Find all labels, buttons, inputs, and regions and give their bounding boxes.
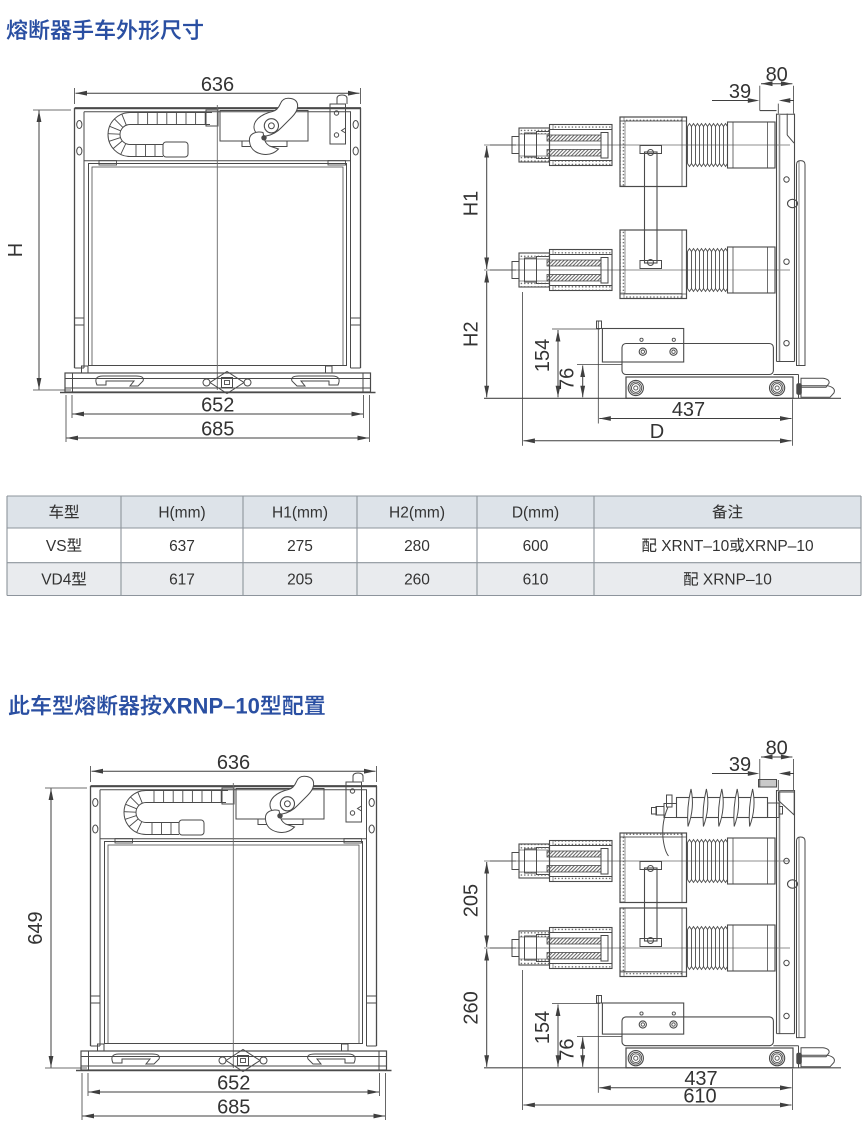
- svg-text:76: 76: [557, 1038, 579, 1060]
- svg-text:280: 280: [404, 538, 430, 555]
- svg-text:XRNT–10: XRNT–10: [661, 538, 729, 555]
- svg-text:H2(mm): H2(mm): [389, 505, 445, 522]
- svg-text:H2: H2: [461, 321, 483, 347]
- svg-text:205: 205: [287, 572, 313, 589]
- svg-text:652: 652: [217, 1072, 250, 1094]
- svg-text:H1: H1: [461, 191, 483, 217]
- svg-text:XRNP–10: XRNP–10: [162, 694, 260, 719]
- svg-text:H1(mm): H1(mm): [272, 505, 328, 522]
- svg-text:636: 636: [217, 752, 250, 774]
- svg-text:39: 39: [729, 754, 751, 776]
- svg-text:685: 685: [201, 418, 234, 440]
- svg-text:76: 76: [557, 368, 579, 390]
- svg-text:275: 275: [287, 538, 313, 555]
- svg-text:205: 205: [461, 884, 483, 917]
- svg-text:260: 260: [404, 572, 430, 589]
- svg-text:XRNP–10: XRNP–10: [703, 572, 772, 589]
- svg-text:154: 154: [532, 339, 554, 372]
- svg-text:VS: VS: [46, 538, 67, 555]
- svg-text:637: 637: [169, 538, 195, 555]
- svg-text:610: 610: [683, 1085, 716, 1107]
- svg-text:D: D: [650, 421, 664, 443]
- svg-text:154: 154: [532, 1011, 554, 1044]
- svg-text:437: 437: [672, 399, 705, 421]
- svg-text:600: 600: [523, 538, 549, 555]
- svg-text:649: 649: [25, 911, 47, 944]
- svg-text:260: 260: [461, 991, 483, 1024]
- svg-text:H: H: [5, 243, 27, 257]
- svg-text:VD4: VD4: [41, 572, 72, 589]
- svg-text:652: 652: [201, 394, 234, 416]
- svg-text:H(mm): H(mm): [158, 505, 205, 522]
- svg-text:39: 39: [729, 81, 751, 103]
- svg-text:80: 80: [766, 737, 788, 759]
- svg-text:D(mm): D(mm): [512, 505, 559, 522]
- svg-text:610: 610: [523, 572, 549, 589]
- svg-text:617: 617: [169, 572, 195, 589]
- svg-text:636: 636: [201, 74, 234, 96]
- svg-text:XRNP–10: XRNP–10: [745, 538, 814, 555]
- svg-text:80: 80: [766, 64, 788, 86]
- svg-text:685: 685: [217, 1096, 250, 1118]
